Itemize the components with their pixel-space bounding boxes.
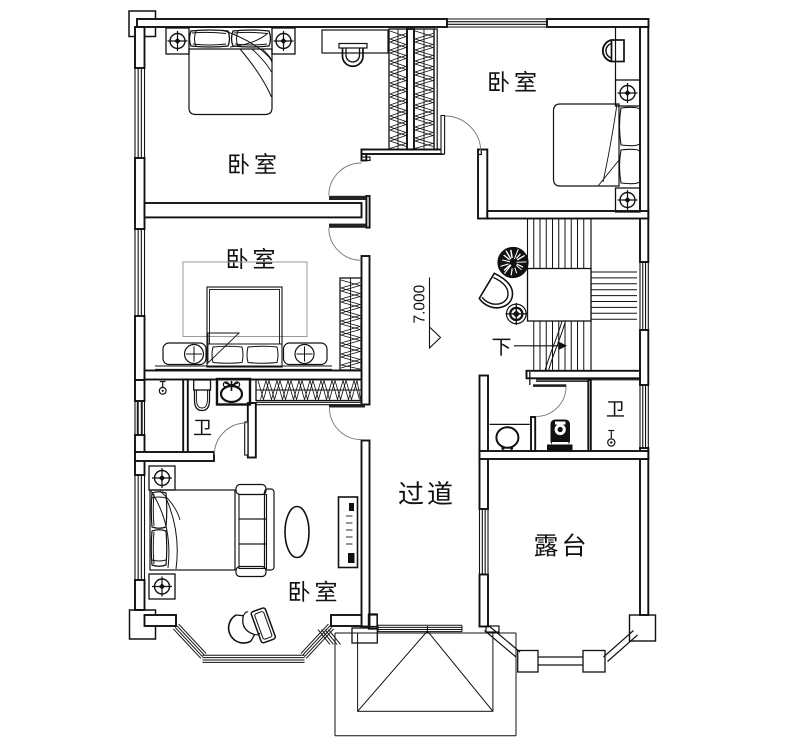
svg-text:7.000: 7.000	[412, 284, 429, 323]
